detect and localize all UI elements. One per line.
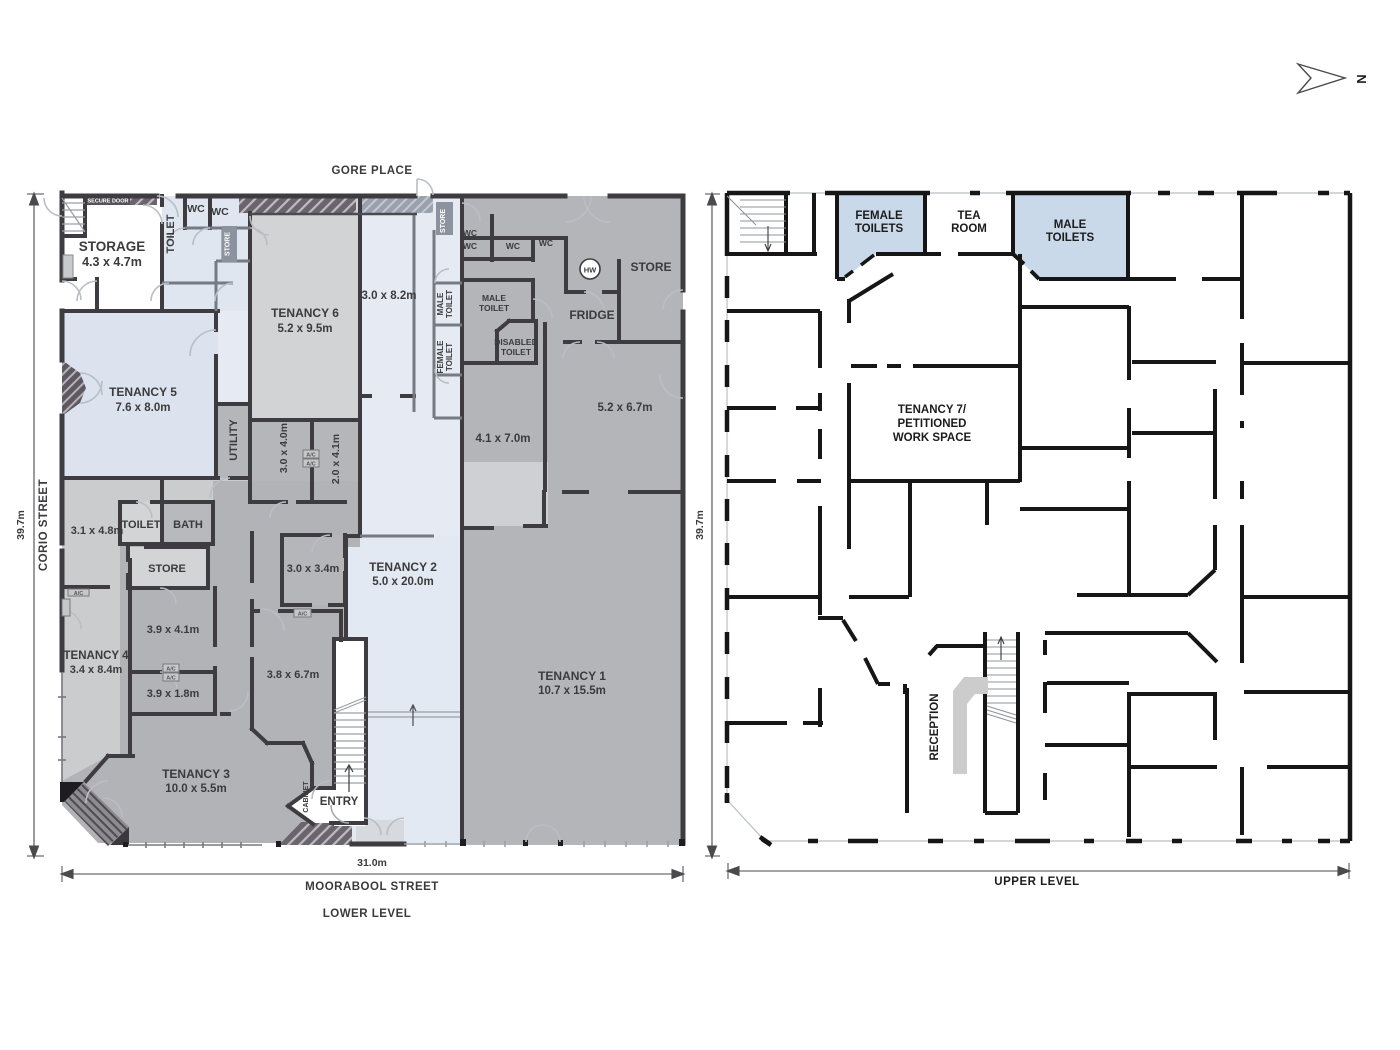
- svg-text:FEMALE: FEMALE: [436, 340, 445, 374]
- svg-text:WC: WC: [211, 206, 229, 218]
- svg-text:4.3 x 4.7m: 4.3 x 4.7m: [82, 255, 142, 269]
- svg-text:TEA: TEA: [958, 210, 981, 222]
- svg-text:LOWER LEVEL: LOWER LEVEL: [323, 908, 412, 920]
- svg-text:MALE: MALE: [1054, 219, 1087, 231]
- svg-text:TENANCY 7/: TENANCY 7/: [898, 404, 967, 416]
- svg-text:STORE: STORE: [148, 563, 186, 575]
- svg-text:MALE: MALE: [436, 292, 445, 315]
- svg-text:3.0 x 3.4m: 3.0 x 3.4m: [287, 563, 340, 575]
- svg-text:FEMALE: FEMALE: [855, 210, 903, 222]
- svg-text:MOORABOOL STREET: MOORABOOL STREET: [305, 881, 439, 893]
- svg-text:3.8 x 6.7m: 3.8 x 6.7m: [267, 669, 320, 681]
- svg-text:5.2 x 9.5m: 5.2 x 9.5m: [278, 323, 333, 335]
- svg-text:MALE: MALE: [482, 293, 506, 303]
- svg-text:10.7 x 15.5m: 10.7 x 15.5m: [538, 685, 606, 697]
- svg-text:TOILET: TOILET: [445, 290, 454, 318]
- svg-text:TENANCY 1: TENANCY 1: [538, 669, 606, 683]
- svg-text:3.9 x 4.1m: 3.9 x 4.1m: [147, 624, 200, 636]
- svg-text:N: N: [1354, 74, 1369, 83]
- svg-text:3.0 x 4.0m: 3.0 x 4.0m: [278, 423, 290, 473]
- svg-text:3.4 x 8.4m: 3.4 x 8.4m: [70, 664, 123, 676]
- svg-text:WC: WC: [187, 203, 205, 215]
- svg-text:TOILET: TOILET: [122, 519, 161, 531]
- svg-text:ENTRY: ENTRY: [320, 796, 359, 808]
- svg-text:UPPER LEVEL: UPPER LEVEL: [994, 876, 1079, 888]
- svg-text:3.1 x 4.8m: 3.1 x 4.8m: [71, 525, 124, 537]
- svg-text:3.0 x 8.2m: 3.0 x 8.2m: [362, 290, 417, 302]
- svg-text:A/C: A/C: [306, 462, 316, 468]
- svg-text:TENANCY 5: TENANCY 5: [109, 385, 177, 399]
- svg-text:FRIDGE: FRIDGE: [569, 308, 614, 322]
- svg-text:TOILET: TOILET: [501, 347, 532, 357]
- svg-text:TENANCY 3: TENANCY 3: [162, 767, 230, 781]
- svg-text:5.2 x 6.7m: 5.2 x 6.7m: [598, 402, 653, 414]
- svg-text:5.0 x 20.0m: 5.0 x 20.0m: [372, 576, 433, 588]
- svg-text:A/C: A/C: [306, 453, 316, 459]
- svg-text:4.1 x 7.0m: 4.1 x 7.0m: [476, 433, 531, 445]
- svg-text:CABINET: CABINET: [303, 781, 310, 813]
- svg-text:3.9 x 1.8m: 3.9 x 1.8m: [147, 688, 200, 700]
- svg-text:A/C: A/C: [298, 612, 308, 618]
- svg-text:TOILET: TOILET: [445, 343, 454, 371]
- svg-text:WC: WC: [539, 238, 553, 248]
- svg-text:CORIO STREET: CORIO STREET: [38, 479, 50, 571]
- svg-text:WC: WC: [463, 228, 477, 238]
- svg-text:WC: WC: [506, 241, 520, 251]
- svg-text:GORE PLACE: GORE PLACE: [331, 165, 412, 177]
- svg-text:STORE: STORE: [630, 260, 671, 274]
- svg-text:TENANCY 6: TENANCY 6: [271, 306, 339, 320]
- svg-text:PETITIONED: PETITIONED: [897, 418, 966, 430]
- svg-text:STORE: STORE: [440, 209, 447, 233]
- svg-text:10.0 x 5.5m: 10.0 x 5.5m: [165, 783, 226, 795]
- svg-text:TENANCY 4: TENANCY 4: [64, 650, 130, 662]
- svg-text:TENANCY 2: TENANCY 2: [369, 560, 437, 574]
- svg-text:TOILETS: TOILETS: [1046, 232, 1095, 244]
- svg-text:31.0m: 31.0m: [357, 857, 387, 869]
- svg-text:ROOM: ROOM: [951, 223, 987, 235]
- svg-text:WORK SPACE: WORK SPACE: [893, 432, 972, 444]
- svg-text:STORAGE: STORAGE: [79, 239, 146, 254]
- svg-text:SECURE DOOR: SECURE DOOR: [88, 199, 129, 205]
- svg-text:39.7m: 39.7m: [694, 510, 706, 540]
- svg-text:A/C: A/C: [166, 667, 176, 673]
- svg-text:RECEPTION: RECEPTION: [929, 693, 941, 760]
- svg-text:HW: HW: [584, 266, 597, 275]
- svg-text:TOILET: TOILET: [479, 303, 510, 313]
- svg-text:TOILET: TOILET: [165, 214, 177, 253]
- svg-text:STORE: STORE: [225, 232, 232, 256]
- svg-text:7.6 x 8.0m: 7.6 x 8.0m: [116, 402, 171, 414]
- svg-text:39.7m: 39.7m: [15, 510, 27, 540]
- svg-text:WC: WC: [463, 241, 477, 251]
- svg-text:A/C: A/C: [74, 591, 84, 597]
- svg-text:A/C: A/C: [166, 676, 176, 682]
- svg-text:2.0 x 4.1m: 2.0 x 4.1m: [330, 434, 342, 484]
- svg-text:BATH: BATH: [173, 519, 203, 531]
- svg-text:DISABLED: DISABLED: [494, 337, 537, 347]
- svg-text:UTILITY: UTILITY: [228, 419, 240, 461]
- svg-text:TOILETS: TOILETS: [855, 223, 904, 235]
